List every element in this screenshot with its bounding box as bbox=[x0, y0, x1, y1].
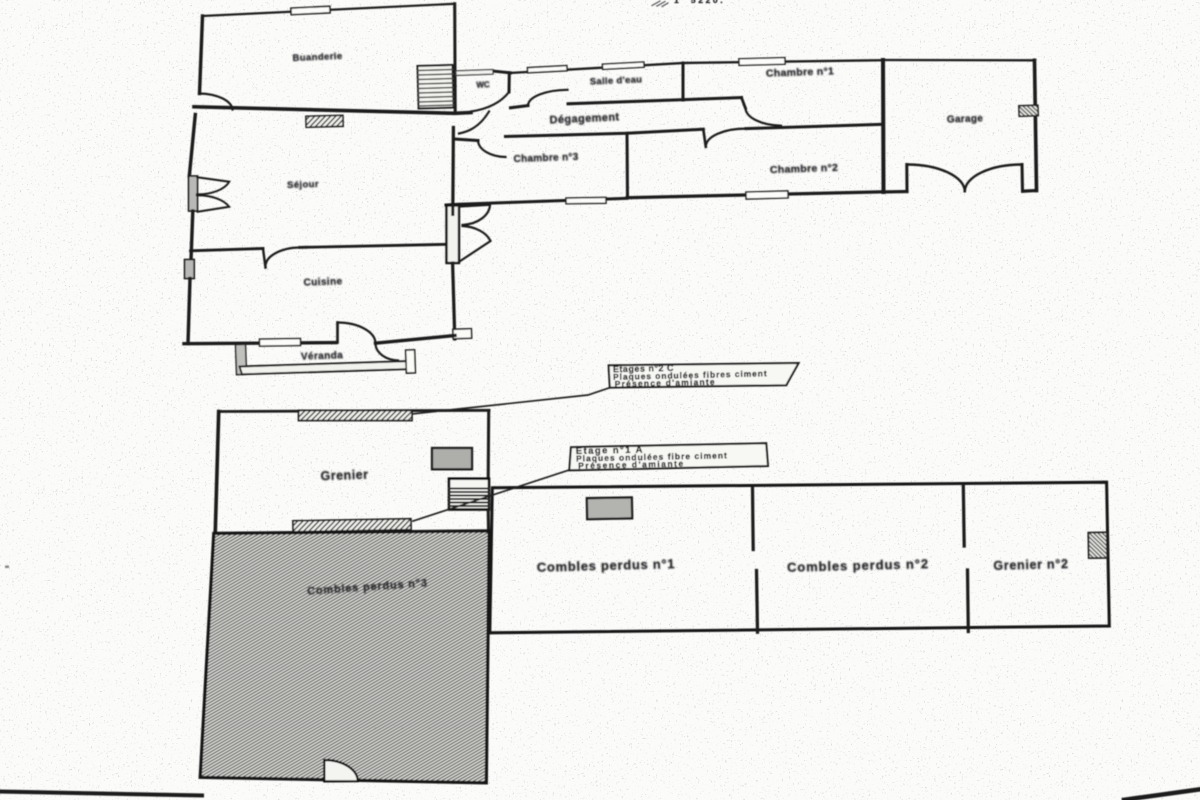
svg-text:Garage: Garage bbox=[947, 113, 984, 125]
svg-text:WC: WC bbox=[476, 80, 490, 89]
svg-text:Chambre n°2: Chambre n°2 bbox=[770, 162, 839, 176]
svg-text:Chambre n°3: Chambre n°3 bbox=[513, 152, 579, 165]
svg-text:1' 5220.: 1' 5220. bbox=[674, 0, 725, 5]
svg-text:Grenier n°2: Grenier n°2 bbox=[993, 557, 1069, 573]
svg-text:Chambre n°1: Chambre n°1 bbox=[766, 65, 835, 79]
svg-text:Buanderie: Buanderie bbox=[292, 51, 342, 64]
svg-text:Cuisine: Cuisine bbox=[303, 276, 342, 288]
svg-text:Grenier: Grenier bbox=[320, 468, 368, 484]
svg-text:Véranda: Véranda bbox=[301, 350, 344, 362]
svg-text:Salle d'eau: Salle d'eau bbox=[590, 74, 643, 87]
svg-text:Séjour: Séjour bbox=[287, 179, 319, 191]
